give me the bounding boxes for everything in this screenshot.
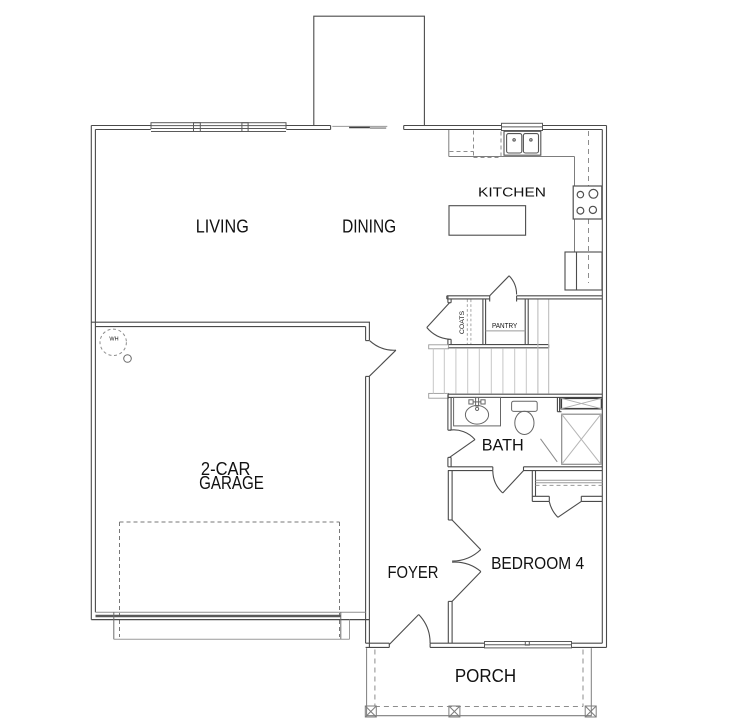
svg-text:FOYER: FOYER	[388, 562, 439, 582]
svg-text:BEDROOM 4: BEDROOM 4	[491, 553, 584, 573]
svg-text:KITCHEN: KITCHEN	[478, 184, 546, 199]
svg-text:COATS: COATS	[459, 310, 466, 334]
svg-text:PORCH: PORCH	[455, 666, 516, 686]
svg-text:LIVING: LIVING	[196, 216, 249, 236]
svg-text:DINING: DINING	[342, 216, 396, 236]
svg-text:WH: WH	[109, 336, 118, 342]
svg-text:GARAGE: GARAGE	[199, 473, 264, 493]
svg-text:PANTRY: PANTRY	[492, 323, 517, 330]
svg-text:BATH: BATH	[482, 437, 524, 455]
